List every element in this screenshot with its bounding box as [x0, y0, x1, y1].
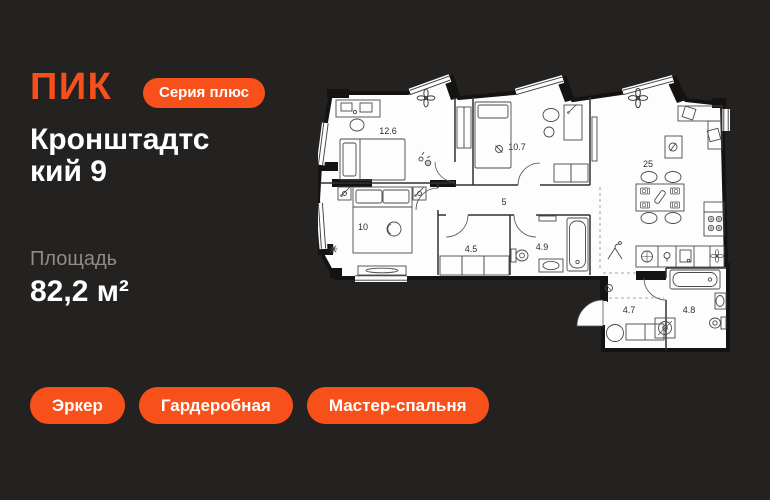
room-label-bedroom-2: 10.7: [508, 142, 526, 152]
room-label-corridor: 5: [501, 197, 506, 207]
floorplan-image: 12.6 10.7 5 10 4.5 4.9 25 4.7 4.8: [318, 60, 748, 360]
listing-card[interactable]: { "colors": { "accent": "#F8501A", "back…: [0, 0, 770, 500]
room-label-wardrobe: 4.5: [465, 244, 478, 254]
series-plus-badge: Серия плюс: [143, 78, 265, 108]
kitchen-sink-icon: [642, 251, 653, 262]
project-title-line2: кий 9: [30, 156, 210, 188]
pik-logo: ПИК: [30, 68, 112, 106]
room-label-bathroom-2: 4.8: [683, 305, 696, 315]
entrance-door: [577, 300, 607, 326]
room-label-bathroom: 4.9: [536, 242, 549, 252]
tag-master-bedroom: Мастер-спальня: [307, 387, 489, 424]
room-label-living-kitchen: 25: [643, 159, 653, 169]
project-title-line1: Кронштадтс: [30, 124, 210, 156]
tag-bay-window: Эркер: [30, 387, 125, 424]
floorplan-svg: 12.6 10.7 5 10 4.5 4.9 25 4.7 4.8: [318, 60, 748, 360]
area-value: 82,2 м²: [30, 275, 129, 309]
project-title: Кронштадтс кий 9: [30, 124, 210, 188]
room-label-master-bedroom: 10: [358, 222, 368, 232]
tag-wardrobe: Гардеробная: [139, 387, 293, 424]
area-label: Площадь: [30, 248, 117, 271]
feature-tags: Эркер Гардеробная Мастер-спальня: [30, 387, 489, 424]
room-label-entrance-hall: 4.7: [623, 305, 636, 315]
room-label-bedroom-1: 12.6: [379, 126, 397, 136]
